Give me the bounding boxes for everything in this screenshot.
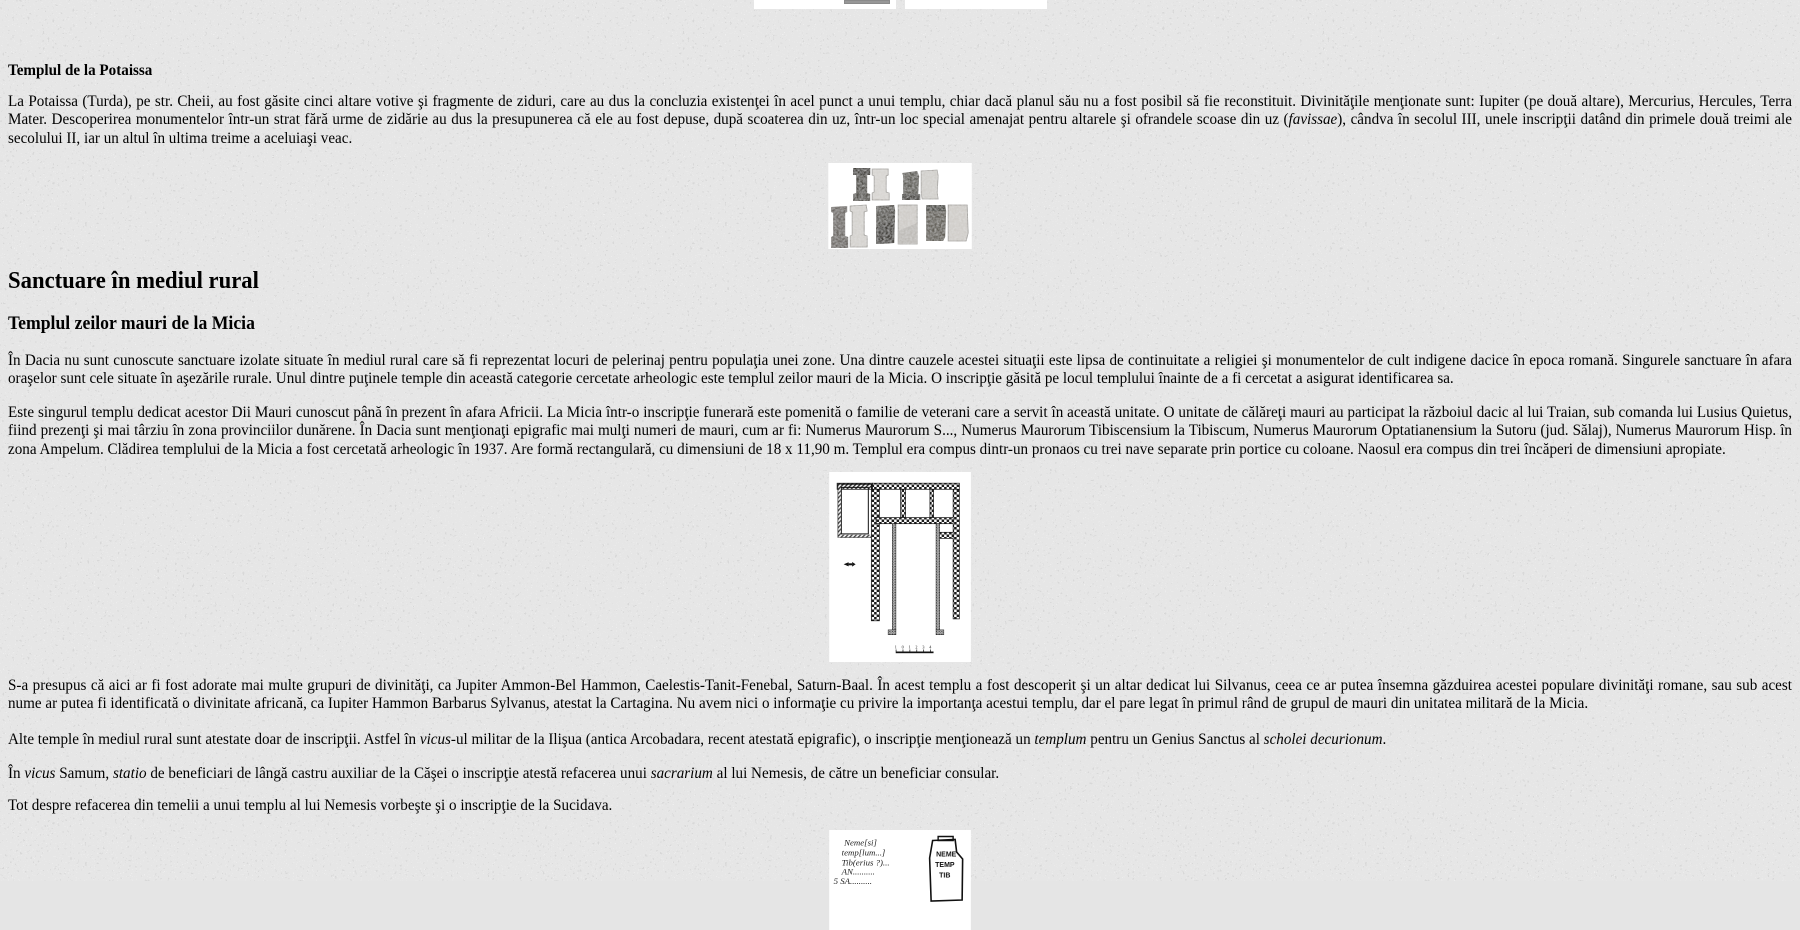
svg-text:0: 0 xyxy=(901,645,903,650)
svg-text:AN..........: AN.......... xyxy=(840,866,874,876)
svg-text:1: 1 xyxy=(895,645,897,650)
svg-text:temp[lum...]: temp[lum...] xyxy=(841,847,885,857)
svg-text:NEME: NEME xyxy=(936,851,957,858)
svg-text:Neme[si]: Neme[si] xyxy=(843,837,877,847)
svg-text:TEMP: TEMP xyxy=(935,862,955,869)
svg-text:3: 3 xyxy=(922,645,924,650)
svg-text:TIB: TIB xyxy=(939,872,950,879)
svg-text:1: 1 xyxy=(908,645,910,650)
svg-text:2: 2 xyxy=(915,645,917,650)
